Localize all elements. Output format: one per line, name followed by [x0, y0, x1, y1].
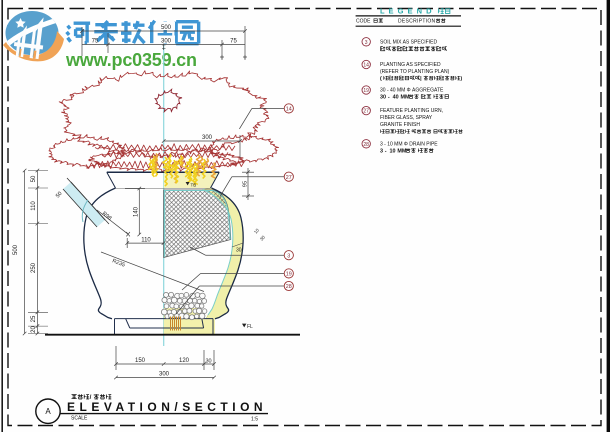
svg-text:30: 30: [205, 359, 211, 365]
svg-text:300: 300: [159, 372, 170, 378]
svg-text:L E G E N D: L E G E N D: [380, 7, 433, 16]
svg-text:50: 50: [31, 175, 37, 182]
svg-text:FL: FL: [247, 324, 253, 330]
svg-text:TB: TB: [191, 183, 197, 188]
svg-text:A: A: [45, 407, 51, 416]
svg-text:MM: MM: [397, 148, 406, 154]
svg-text:19: 19: [286, 272, 292, 278]
svg-text:300: 300: [161, 39, 172, 45]
svg-text:14: 14: [363, 63, 369, 69]
svg-text:28: 28: [286, 284, 292, 290]
svg-text:140: 140: [134, 206, 140, 217]
svg-text:150: 150: [135, 358, 146, 364]
svg-text:CODE: CODE: [356, 19, 371, 25]
svg-text:SCALE: SCALE: [71, 416, 88, 422]
svg-text:30 - 40 MM Φ AGGREGATE: 30 - 40 MM Φ AGGREGATE: [380, 88, 444, 94]
svg-text:500: 500: [161, 25, 172, 31]
svg-text:FEATURE PLANTING URN,: FEATURE PLANTING URN,: [380, 108, 443, 114]
svg-text:120: 120: [179, 358, 190, 364]
svg-text:): ): [460, 76, 462, 82]
svg-text:300: 300: [202, 135, 213, 141]
svg-text:-: -: [385, 148, 387, 154]
svg-text:(REFER TO PLANTING PLAN): (REFER TO PLANTING PLAN): [380, 69, 450, 75]
svg-text:MM: MM: [401, 95, 410, 101]
svg-text:110: 110: [141, 237, 151, 243]
svg-text:27: 27: [363, 109, 369, 115]
svg-text:3: 3: [287, 253, 290, 259]
svg-text:www.pc0359.cn: www.pc0359.cn: [65, 50, 197, 70]
svg-text:-: -: [388, 95, 390, 101]
svg-text:75: 75: [230, 39, 237, 45]
svg-text:30: 30: [236, 248, 242, 254]
svg-text:500: 500: [13, 244, 19, 255]
svg-text:DESCRIPTION: DESCRIPTION: [398, 19, 436, 25]
svg-text:75: 75: [92, 39, 99, 45]
svg-text:3: 3: [365, 40, 368, 46]
svg-text:1:5: 1:5: [251, 417, 258, 423]
svg-text:PLANTING AS SPECIFIED: PLANTING AS SPECIFIED: [380, 62, 441, 68]
svg-text:SOIL MIX AS SPECIFIED: SOIL MIX AS SPECIFIED: [380, 40, 437, 46]
svg-text:(: (: [380, 76, 382, 82]
svg-text:19: 19: [363, 88, 369, 94]
svg-text:14: 14: [286, 107, 292, 113]
svg-text:FIBER GLASS, SPRAY: FIBER GLASS, SPRAY: [380, 115, 433, 121]
svg-text:40: 40: [393, 95, 399, 101]
svg-text:25: 25: [31, 315, 37, 322]
svg-text:GRANITE FINISH: GRANITE FINISH: [380, 122, 420, 128]
svg-text:ELEVATION/SECTION: ELEVATION/SECTION: [67, 400, 267, 414]
svg-text:27: 27: [286, 175, 292, 181]
svg-text:250: 250: [31, 262, 37, 273]
svg-text:3: 3: [380, 148, 383, 154]
svg-text:95: 95: [243, 181, 249, 187]
svg-text:110: 110: [31, 201, 37, 211]
svg-text:3 - 10 MM Φ DRAIN PIPE: 3 - 10 MM Φ DRAIN PIPE: [380, 141, 438, 147]
svg-text:28: 28: [363, 142, 369, 148]
svg-text:30: 30: [380, 95, 386, 101]
svg-text:10: 10: [390, 148, 396, 154]
svg-text:20: 20: [31, 326, 37, 333]
